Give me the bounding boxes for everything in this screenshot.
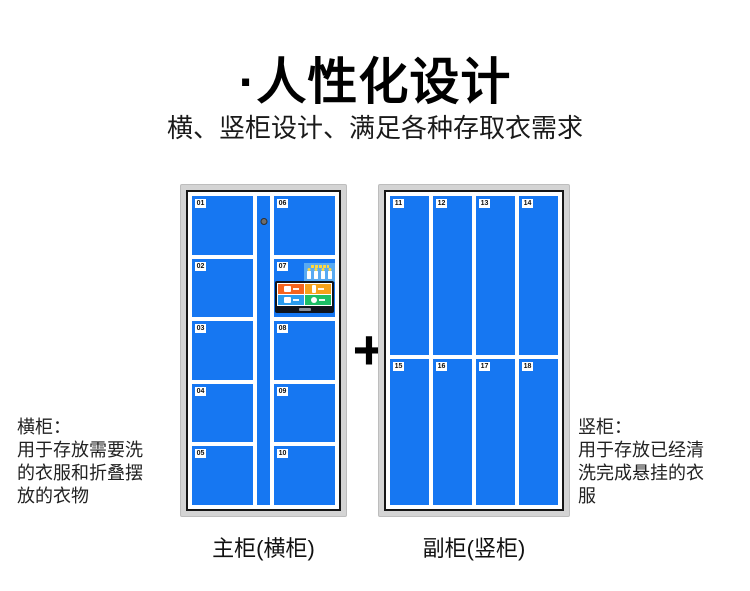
key-tag-icon [328,271,332,279]
door-icon [312,285,316,293]
screen-tile-blue [278,295,304,305]
main-cabinet: 01 02 03 04 05 06 [180,184,347,517]
main-cabinet-caption: 主柜(横柜) [180,531,347,563]
door-number-tag: 12 [436,199,447,208]
note-line: 的衣服和折叠摆 [17,462,187,485]
key-tag-icon [307,271,311,279]
emergency-keys-icon [304,263,335,282]
locker-door-12: 12 [433,196,472,355]
key-panel-label [311,265,329,268]
door-number-tag: 01 [195,199,206,208]
note-line: 用于存放需要洗 [17,439,187,462]
screen-home-bar [299,308,311,311]
note-heading: 竖柜： [578,416,748,439]
locker-door-13: 13 [476,196,515,355]
page-title: ·人性化设计 [0,42,750,114]
door-number-tag: 08 [277,324,288,333]
tile-text-bar [319,299,325,301]
door-number-tag: 15 [393,362,404,371]
locker-door-17: 17 [476,359,515,505]
note-line: 洗完成悬挂的衣 [578,462,748,485]
key-tags [307,271,332,279]
door-number-tag: 02 [195,262,206,271]
screen-tile-amber [305,284,331,294]
main-cabinet-left-column: 01 02 03 04 05 [192,196,253,505]
tile-text-bar [293,299,299,301]
locker-door-10: 10 [274,446,335,505]
note-line: 放的衣物 [17,485,187,508]
locker-door-07: 07 [274,259,335,318]
door-number-tag: 16 [436,362,447,371]
locker-door-02: 02 [192,259,253,318]
main-cabinet-body: 01 02 03 04 05 06 [186,190,341,511]
door-number-tag: 10 [277,449,288,458]
lock-icon [260,218,267,225]
tile-text-bar [293,288,299,290]
locker-box-icon [284,297,291,303]
locker-door-03: 03 [192,321,253,380]
note-vertical-cabinet: 竖柜： 用于存放已经清 洗完成悬挂的衣 服 [578,416,748,508]
door-number-tag: 18 [522,362,533,371]
tile-text-bar [318,288,324,290]
screen-tile-orange [278,284,304,294]
door-number-tag: 04 [195,387,206,396]
note-horizontal-cabinet: 横柜： 用于存放需要洗 的衣服和折叠摆 放的衣物 [17,416,187,508]
door-number-tag: 11 [393,199,404,208]
locker-door-11: 11 [390,196,429,355]
note-heading: 横柜： [17,416,187,439]
screen-tiles [277,283,332,306]
secondary-cabinet-body: 11 12 13 14 15 16 17 18 [384,190,564,511]
locker-door-15: 15 [390,359,429,505]
door-number-tag: 13 [479,199,490,208]
screen-tile-green [305,295,331,305]
page-subtitle: 横、竖柜设计、满足各种存取衣需求 [0,108,750,145]
locker-door-01: 01 [192,196,253,255]
locker-door-04: 04 [192,384,253,443]
locker-door-09: 09 [274,384,335,443]
secondary-cabinet: 11 12 13 14 15 16 17 18 [378,184,570,517]
door-number-tag: 07 [277,262,288,271]
note-line: 用于存放已经清 [578,439,748,462]
locker-door-06: 06 [274,196,335,255]
gear-icon [311,297,317,303]
main-cabinet-right-column: 06 07 [274,196,335,505]
key-tag-icon [314,271,318,279]
door-number-tag: 17 [479,362,490,371]
door-number-tag: 06 [277,199,288,208]
control-screen [275,281,334,313]
locker-door-08: 08 [274,321,335,380]
locker-door-16: 16 [433,359,472,505]
door-number-tag: 09 [277,387,288,396]
locker-door-05: 05 [192,446,253,505]
key-tag-icon [321,271,325,279]
secondary-cabinet-caption: 副柜(竖柜) [378,531,570,563]
note-line: 服 [578,485,748,508]
center-door-column [257,196,270,505]
locker-door-14: 14 [519,196,558,355]
locker-door-18: 18 [519,359,558,505]
door-number-tag: 14 [522,199,533,208]
door-number-tag: 05 [195,449,206,458]
locker-box-icon [284,286,291,292]
door-number-tag: 03 [195,324,206,333]
